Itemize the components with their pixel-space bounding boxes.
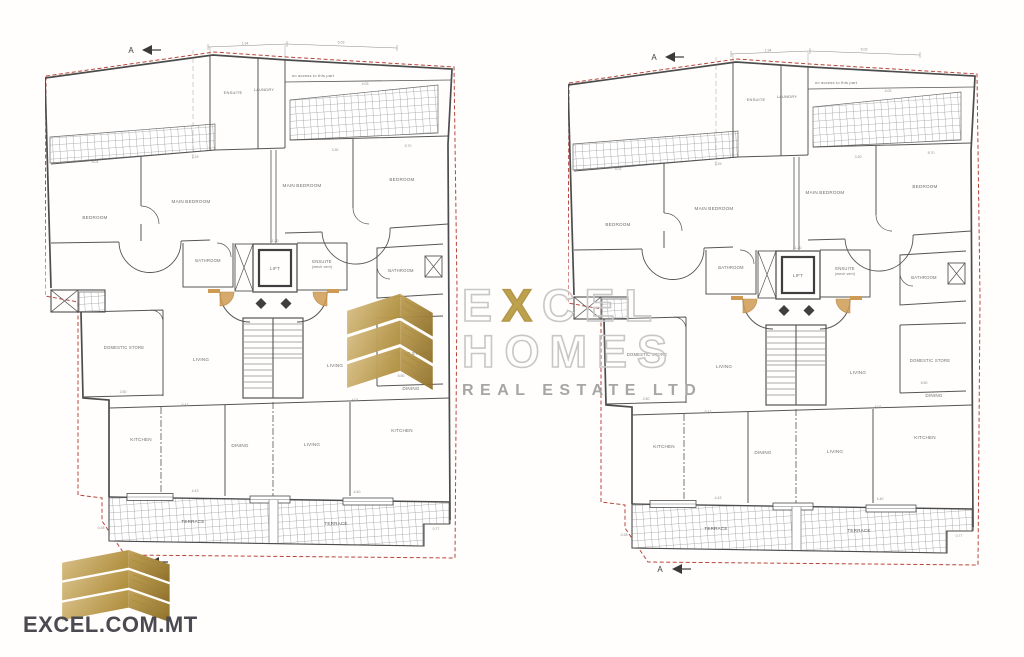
excel-homes-logo-icon (343, 283, 445, 390)
excel-homes-logo-icon (57, 542, 185, 622)
website-url: EXCEL.COM.MT (23, 612, 198, 638)
watermark-tagline: REAL ESTATE LTD (462, 382, 702, 400)
watermark-word-excel: EXCEL (462, 283, 702, 329)
watermark-word-homes: HOMES (462, 329, 702, 375)
watermark-letter: E (462, 280, 502, 331)
floorplan-sheet: A A BEDROOM MAIN BEDROOM MAIN BEDROOM BE… (0, 0, 1024, 657)
watermark-letters: CEL (542, 280, 662, 331)
watermark: EXCEL HOMES REAL ESTATE LTD (462, 283, 702, 400)
watermark-letter-x-gold: X (502, 280, 542, 331)
